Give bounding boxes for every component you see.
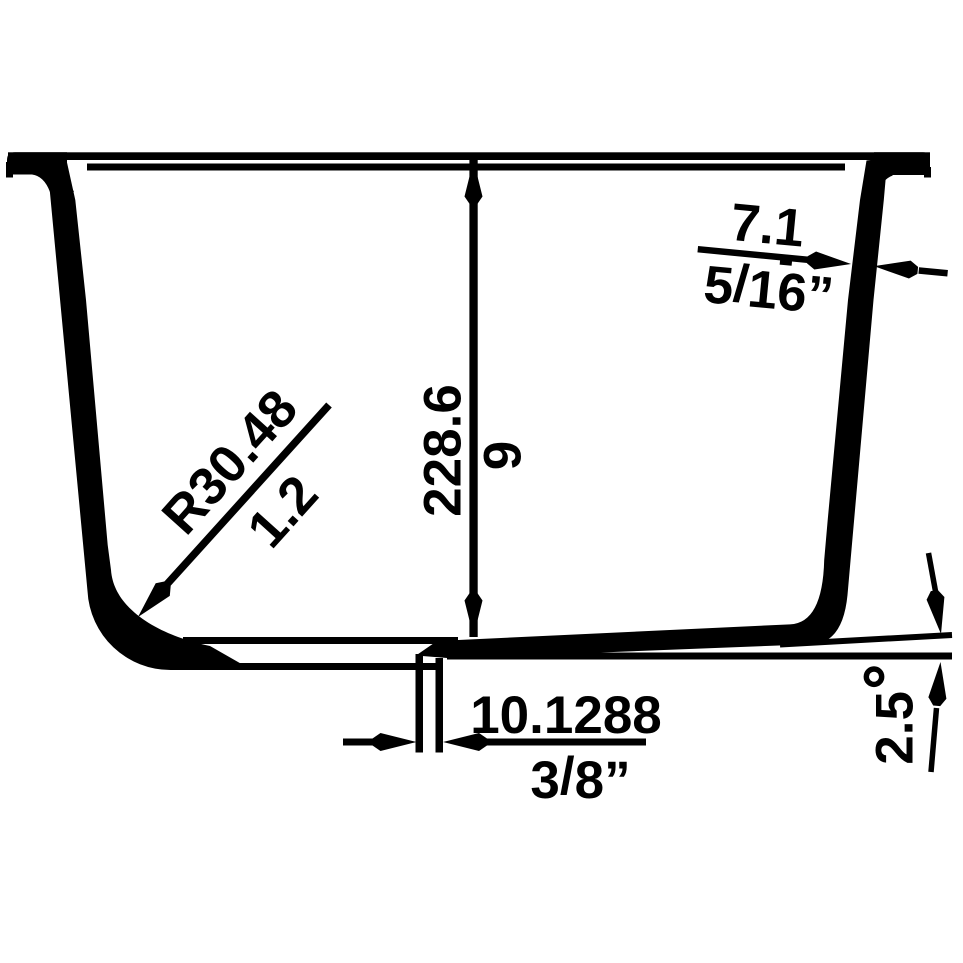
svg-text:9: 9: [474, 441, 533, 470]
svg-text:10.1288: 10.1288: [470, 686, 662, 745]
svg-text:228.6: 228.6: [414, 384, 473, 517]
svg-text:3/8”: 3/8”: [530, 747, 630, 810]
svg-text:7.1: 7.1: [728, 193, 807, 259]
svg-text:2.5: 2.5: [866, 691, 925, 765]
